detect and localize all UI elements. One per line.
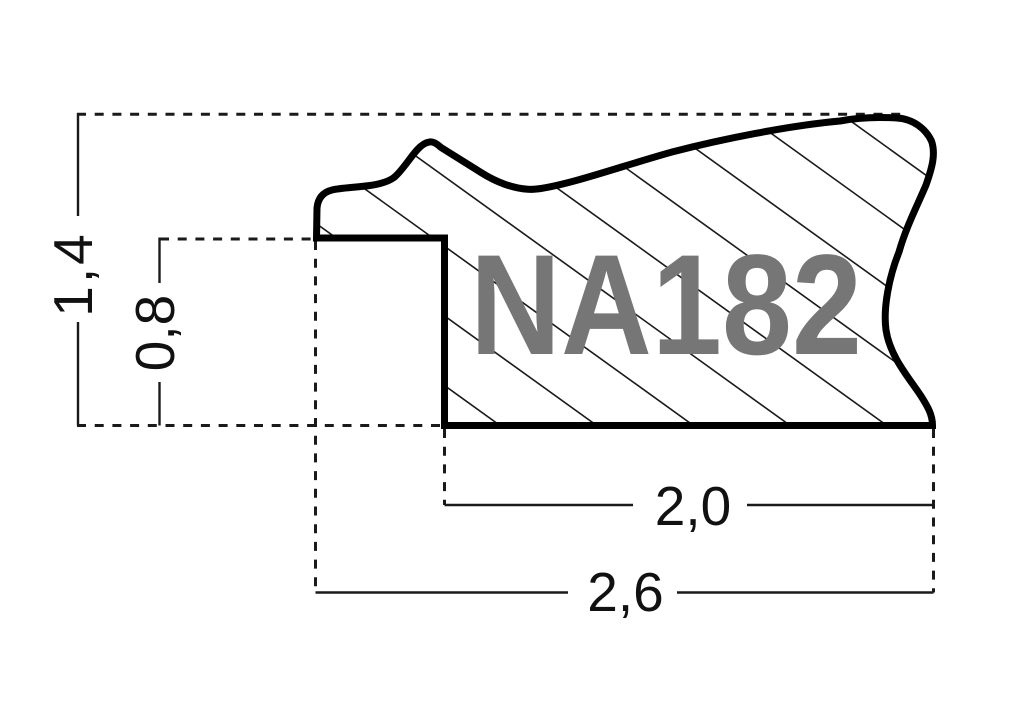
svg-text:NA182: NA182 <box>470 226 862 385</box>
svg-text:0,8: 0,8 <box>124 295 186 371</box>
svg-text:2,6: 2,6 <box>587 561 663 623</box>
svg-text:2,0: 2,0 <box>655 475 731 537</box>
svg-text:1,4: 1,4 <box>42 231 104 316</box>
